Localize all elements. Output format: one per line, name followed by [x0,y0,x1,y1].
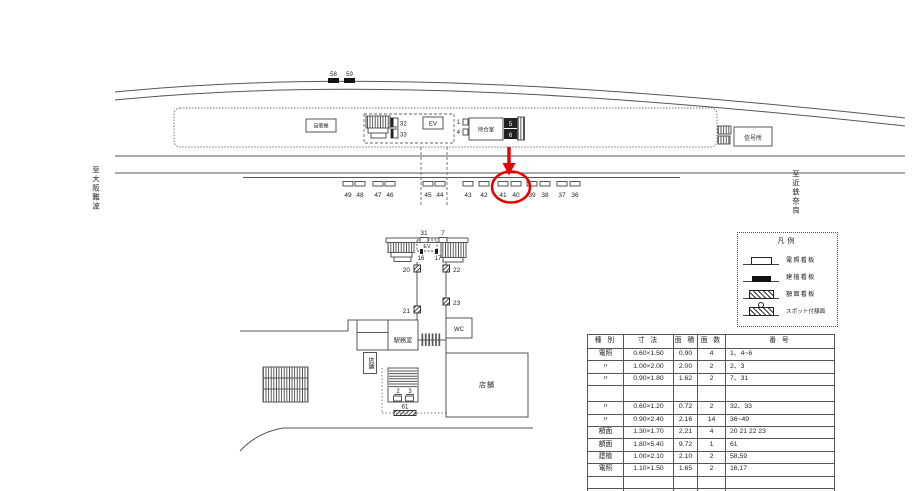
vending-machine: 自販機 [306,119,336,132]
spec-cell: 36~49 [726,414,835,426]
track-sign-label-37: 37 [558,192,566,199]
spec-cell: 2 [698,451,726,463]
spec-header-faces: 面 数 [698,335,726,349]
spec-cell [624,386,674,402]
spec-cell: 0.60×1.20 [624,402,674,414]
illuminated-sign-icon [751,257,772,265]
spec-cell [674,386,698,402]
spec-cell: 1、4~6 [726,349,835,361]
svg-text:自販機: 自販機 [313,123,328,130]
track-sign-label-40: 40 [512,192,520,199]
station-layout-diagram: 58 59 自販機 32 33 [0,0,919,491]
spec-cell: 2.10 [674,451,698,463]
spec-header-numbers: 番 号 [726,335,835,349]
spec-cell: 2 [698,402,726,414]
track-sign-box-41 [498,182,508,187]
spec-cell [588,386,624,402]
spec-cell: 2、3 [726,361,835,373]
spec-cell: 14 [698,414,726,426]
sign-61-label: 61 [402,405,409,411]
spec-table-row: 〃0.90×2.402.161436~49 [588,414,835,426]
road-line [240,428,533,451]
track-sign-label-43: 43 [464,192,472,199]
legend-row-illuminated: 電照看板 [743,248,832,265]
spec-cell: 〃 [588,414,624,426]
legend-label-illuminated: 電照看板 [786,255,816,264]
sign-17-label: 17 [435,256,442,262]
spec-cell [698,476,726,488]
svg-text:EV: EV [429,122,437,128]
sign-31-label: 31 [420,230,428,237]
toilet-label: WC [454,327,465,333]
spec-cell: 1.65 [674,464,698,476]
shop-large: 店舗 [446,353,528,417]
track-sign-box-43 [463,182,473,187]
waiting-room-hatch [518,117,525,140]
spec-table-row: 建植1.00×2.102.10258,59 [588,451,835,463]
sign-16-label: 16 [418,256,425,262]
erected-sign-59 [344,78,355,83]
spec-cell: 32、33 [726,402,835,414]
legend-title: 凡例 [743,236,832,246]
spec-header-area: 面 積 [674,335,698,349]
faced-sign-icon [749,290,774,299]
legend-label-faced: 額面看板 [786,289,816,298]
spec-table-row: 〃0.60×1.200.72232、33 [588,402,835,414]
spec-cell [726,386,835,402]
spec-cell: 1.62 [674,373,698,385]
spec-cell: 1.10×1.50 [624,464,674,476]
spec-cell: 0.90 [674,349,698,361]
track-sign-label-38: 38 [541,192,549,199]
illum-sign-1 [463,119,468,125]
spec-cell: 0.90×2.40 [624,414,674,426]
spec-cell: 電照 [588,349,624,361]
spec-cell: 額面 [588,426,624,438]
direction-left-label: 至大阪難波 [92,166,100,211]
spec-cell: 1.80×5.40 [624,439,674,451]
spec-cell [588,476,624,488]
legend-row-faced: 額面看板 [743,282,832,299]
spec-cell: 電照 [588,464,624,476]
spec-cell: 7、31 [726,373,835,385]
inner-stairs [388,368,418,402]
track-sign-box-40 [511,182,521,187]
track-sign-box-38 [540,182,550,187]
spec-cell: 20 21 22 23 [726,426,835,438]
spec-cell: 2 [698,464,726,476]
spec-table-row: 〃1.00×2.002.0022、3 [588,361,835,373]
track-sign-box-49 [343,182,353,187]
spec-cell: 0.90×1.80 [624,373,674,385]
legend-row-spot: スポット付額面 [743,299,832,316]
track-sign-box-46 [385,182,395,187]
corridor-walls [417,262,446,320]
track-sign-label-48: 48 [356,192,364,199]
track-sign-label-46: 46 [386,192,394,199]
spec-header-type: 種 別 [588,335,624,349]
faced-sign-21 [414,306,421,313]
spot-dot-icon [758,302,764,308]
spec-table-body: 電照0.60×1.500.9041、4~6〃1.00×2.002.0022、3〃… [588,349,835,491]
legend-row-erected: 建植看板 [743,265,832,282]
highlight-circle [492,172,530,203]
platform-elevator: EV [423,117,443,129]
spot-faced-sign-icon [749,307,774,316]
spec-cell: 4 [698,349,726,361]
spec-cell [624,476,674,488]
sign-33-label: 33 [400,133,407,139]
spec-cell: 61 [726,439,835,451]
track-sign-label-42: 42 [480,192,488,199]
spec-cell [698,386,726,402]
track-sign-label-47: 47 [374,192,382,199]
spec-cell: 0.60×1.50 [624,349,674,361]
faced-sign-22 [443,265,450,272]
faced-sign-20 [414,265,421,272]
spec-cell [726,476,835,488]
legend-label-spot: スポット付額面 [786,307,825,315]
spec-table-row [588,476,835,488]
track-sign-label-41: 41 [499,192,507,199]
spec-cell: 〃 [588,402,624,414]
track-sign-label-44: 44 [436,192,444,199]
spec-cell: 4 [698,426,726,438]
track-sign-box-48 [355,182,365,187]
track-sign-box-45 [423,182,433,187]
sign-58-label: 58 [330,72,337,78]
spec-cell: 額面 [588,439,624,451]
sign-22-label: 22 [453,267,461,274]
station-office-label: 駅務室 [394,337,413,345]
svg-text:信号所: 信号所 [744,134,762,142]
track-sign-label-45: 45 [424,192,432,199]
track-signs: 4948474645444342414039383736 [343,182,580,200]
sign-59-label: 59 [346,72,353,78]
track-sign-label-49: 49 [344,192,352,199]
spec-table-row: 額面1.80×5.409.72161 [588,439,835,451]
spec-cell: 2.16 [674,414,698,426]
spec-cell: 2 [698,361,726,373]
erected-sign-58 [328,78,339,83]
faced-sign-23 [443,298,450,305]
legend-box: 凡例 電照看板 建植看板 額面看板 スポット付額面 [737,232,838,327]
wall-signs: 20 22 21 23 [403,265,461,315]
shop-small-label: 店舗 [363,352,377,374]
sign-23-label: 23 [453,300,461,307]
building-ev-label: EV [423,244,431,250]
spec-cell [674,476,698,488]
spec-cell: 1.30×1.70 [624,426,674,438]
track-sign-box-47 [373,182,383,187]
spec-cell: 1.00×2.00 [624,361,674,373]
legend-label-erected: 建植看板 [786,272,816,281]
spec-table-row: 〃0.90×1.801.6227、31 [588,373,835,385]
svg-text:待合室: 待合室 [478,126,495,134]
direction-right-label: 至近鉄奈良 [792,170,800,215]
outdoor-stairs [263,367,308,402]
shop-large-label: 店舗 [479,380,495,389]
spec-table-row [588,386,835,402]
track-sign-box-42 [479,182,489,187]
spec-cell: 〃 [588,373,624,385]
track-sign-box-36 [570,182,580,187]
spec-cell: 〃 [588,361,624,373]
track-sign-box-44 [435,182,445,187]
sign-7-label: 7 [441,230,445,237]
spec-cell: 9.72 [674,439,698,451]
spec-header-size: 寸 法 [624,335,674,349]
track-sign-box-37 [557,182,567,187]
illum-sign-4 [463,129,468,135]
spec-cell: 1.00×2.10 [624,451,674,463]
spec-table-row: 電照0.60×1.500.9041、4~6 [588,349,835,361]
spec-table-row: 電照1.10×1.501.65216,17 [588,464,835,476]
sign-20-label: 20 [403,267,411,274]
spec-cell: 1 [698,439,726,451]
spec-cell: 16,17 [726,464,835,476]
sign-21-label: 21 [403,308,411,315]
spec-cell: 2.21 [674,426,698,438]
spec-cell: 0.72 [674,402,698,414]
spec-table-row: 額面1.30×1.702.21420 21 22 23 [588,426,835,438]
spec-cell: 2.00 [674,361,698,373]
spec-table-header-row: 種 別 寸 法 面 積 面 数 番 号 [588,335,835,349]
signal-office: 信号所 [718,126,772,146]
track-sign-label-36: 36 [571,192,579,199]
sign-32-label: 32 [400,122,407,128]
spec-cell: 58,59 [726,451,835,463]
spec-cell: 2 [698,373,726,385]
spec-table: 種 別 寸 法 面 積 面 数 番 号 電照0.60×1.500.9041、4~… [587,334,835,491]
spec-cell: 建植 [588,451,624,463]
